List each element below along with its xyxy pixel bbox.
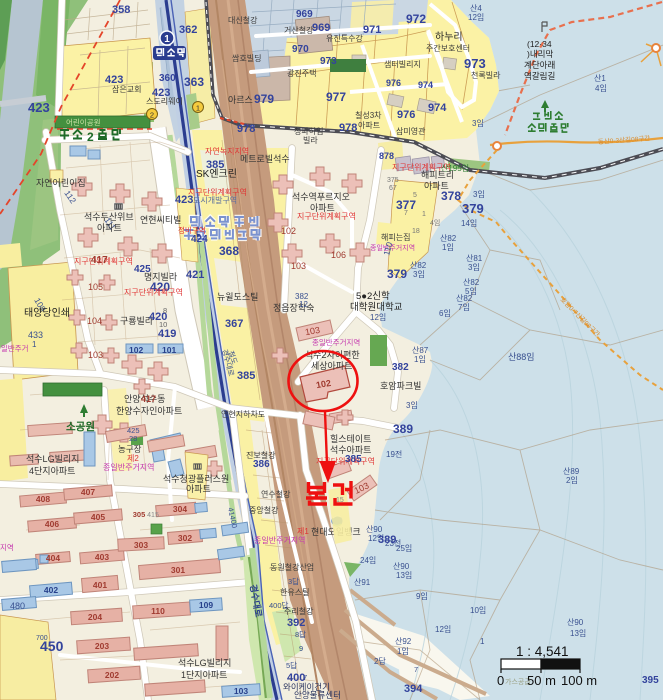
svg-text:379: 379 [462,201,484,216]
svg-text:1임: 1임 [397,647,409,656]
svg-text:103: 103 [88,350,103,360]
svg-text:천록빌라: 천록빌라 [471,70,501,80]
svg-text:아르스: 아르스 [228,95,253,105]
svg-text:102: 102 [129,345,143,355]
svg-text:뉴윌도스틸: 뉴윌도스틸 [217,292,258,302]
svg-text:석수두산위브: 석수두산위브 [84,212,134,222]
svg-text:973: 973 [464,56,486,71]
svg-text:삼미영관: 삼미영관 [396,126,426,136]
svg-text:480: 480 [10,601,25,611]
svg-text:자연어린이집: 자연어린이집 [36,177,86,188]
svg-text:109: 109 [199,600,213,610]
svg-text:3임: 3임 [472,119,484,128]
svg-text:산90: 산90 [567,617,584,627]
svg-text:아파트: 아파트 [186,484,211,494]
svg-text:어린이공원: 어린이공원 [66,117,101,127]
svg-text:8답: 8답 [295,629,306,639]
svg-text:9: 9 [299,644,303,653]
svg-text:110: 110 [151,606,165,616]
svg-text:산82: 산82 [456,293,473,303]
svg-text:415: 415 [147,512,159,519]
svg-text:14임: 14임 [461,219,477,228]
svg-text:지구단위계획구역: 지구단위계획구역 [124,287,183,297]
svg-text:102: 102 [281,226,296,236]
svg-text:106: 106 [331,250,346,260]
svg-text:소공원: 소공원 [66,420,95,433]
svg-text:산4: 산4 [470,3,482,13]
svg-text:1임: 1임 [414,355,426,364]
svg-text:1: 1 [32,340,37,349]
svg-text:2답: 2답 [374,656,386,666]
svg-text:202: 202 [105,670,119,680]
svg-text:302: 302 [178,533,192,543]
svg-text:50 m: 50 m [527,673,556,688]
svg-text:385: 385 [345,454,362,465]
svg-text:433: 433 [28,330,43,340]
svg-text:392: 392 [287,617,305,629]
svg-text:삼은교회: 삼은교회 [112,84,141,94]
svg-text:(12·34: (12·34 [527,39,552,49]
svg-text:970: 970 [292,44,309,55]
svg-text:2임: 2임 [566,476,578,485]
svg-text:969: 969 [312,22,330,34]
svg-text:969: 969 [296,9,313,20]
svg-text:산90: 산90 [393,561,410,571]
svg-text:연현지하차도: 연현지하차도 [221,409,265,419]
svg-text:5●2신학: 5●2신학 [356,291,390,302]
svg-text:976: 976 [386,78,401,88]
svg-text:1: 1 [480,637,485,646]
svg-text:67: 67 [389,185,397,192]
svg-text:105: 105 [88,282,103,292]
svg-text:4단지아파트: 4단지아파트 [29,466,75,476]
svg-text:산89: 산89 [563,466,580,476]
svg-text:979: 979 [254,92,274,106]
svg-text:석수2차이편한: 석수2차이편한 [305,349,360,360]
svg-text:2: 2 [87,130,94,144]
svg-text:한양수자인아파트: 한양수자인아파트 [116,406,182,416]
svg-text:SK엔크린: SK엔크린 [196,168,237,180]
svg-text:303: 303 [134,540,148,550]
svg-text:368: 368 [219,244,239,258]
svg-text:1단지아파트: 1단지아파트 [181,670,227,680]
svg-text:404: 404 [46,553,60,563]
svg-text:주리철강: 주리철강 [284,606,314,616]
svg-text:203: 203 [95,641,109,651]
svg-text:1임: 1임 [442,243,454,252]
svg-text:423: 423 [152,87,170,99]
svg-text:419: 419 [158,328,176,340]
svg-text:378: 378 [441,189,461,203]
svg-text:5답: 5답 [286,660,297,670]
svg-text:421: 421 [186,269,204,281]
svg-text:태양당인쇄: 태양당인쇄 [24,307,70,319]
svg-text:3임: 3임 [468,263,480,272]
svg-text:100 m: 100 m [561,673,597,688]
svg-text:역갈림길: 역갈림길 [524,71,555,81]
svg-text:978: 978 [339,122,357,134]
svg-text:산88임: 산88임 [508,351,535,362]
svg-text:12임: 12임 [370,313,386,322]
svg-text:아파트: 아파트 [358,120,380,130]
svg-text:종일반주거: 종일반주거 [0,344,29,353]
svg-text:9임: 9임 [416,592,428,601]
svg-text:1: 1 [164,34,170,45]
svg-text:도시개발구역: 도시개발구역 [193,195,237,205]
svg-text:지구단위계획구역: 지구단위계획구역 [297,211,356,221]
svg-text:연수철강: 연수철강 [261,489,291,499]
svg-text:3임: 3임 [406,401,418,410]
svg-text:405: 405 [91,512,105,522]
svg-text:힐스테이트: 힐스테이트 [330,433,371,444]
svg-text:375: 375 [387,177,399,184]
svg-text:28: 28 [129,434,137,443]
svg-text:산87: 산87 [412,345,429,355]
svg-text:)내리막: )내리막 [527,49,553,59]
svg-text:10임: 10임 [470,606,486,615]
svg-text:13임: 13임 [570,629,586,638]
svg-text:103: 103 [291,261,306,271]
svg-text:305: 305 [133,510,146,519]
svg-text:408: 408 [36,494,50,504]
svg-text:산81: 산81 [466,253,483,263]
svg-text:12임: 12임 [468,13,484,22]
svg-text:7임: 7임 [458,303,470,312]
svg-text:빌라: 빌라 [303,135,318,145]
svg-text:아파트: 아파트 [97,223,122,233]
svg-text:석수LG빌리지: 석수LG빌리지 [26,454,79,464]
svg-text:메트로빌석수: 메트로빌석수 [240,154,290,164]
svg-text:1: 1 [422,211,426,218]
svg-text:12임: 12임 [435,625,451,634]
svg-text:974: 974 [428,102,447,114]
svg-text:417: 417 [91,255,108,266]
svg-text:7: 7 [414,665,418,674]
svg-text:4임: 4임 [595,84,607,93]
svg-text:973: 973 [320,56,337,67]
svg-text:104: 104 [87,316,102,326]
svg-text:402: 402 [44,585,58,595]
svg-text:363: 363 [184,75,204,89]
svg-text:산82: 산82 [440,233,457,243]
svg-text:972: 972 [406,12,426,26]
svg-text:해피트리: 해피트리 [421,170,454,180]
svg-text:하누리: 하누리 [435,30,463,43]
svg-text:산82: 산82 [463,277,480,287]
svg-text:424: 424 [191,234,208,245]
svg-text:2: 2 [150,111,154,120]
svg-text:304: 304 [173,504,187,514]
svg-text:13임: 13임 [396,571,412,580]
svg-text:세상아파트: 세상아파트 [311,361,352,371]
svg-text:878: 878 [379,151,394,161]
svg-text:중앙철강: 중앙철강 [249,505,279,515]
svg-text:403: 403 [95,552,109,562]
svg-text:호암파크빌: 호암파크빌 [380,380,421,391]
svg-text:동원철강산업: 동원철강산업 [270,562,314,572]
svg-text:358: 358 [112,4,130,16]
svg-text:석수청광플러스원: 석수청광플러스원 [163,473,229,484]
svg-text:5: 5 [413,192,417,199]
svg-text:해피는집: 해피는집 [381,232,410,242]
svg-text:700: 700 [36,635,48,642]
svg-text:3답: 3답 [288,576,299,586]
svg-text:8: 8 [163,306,167,315]
svg-text:103: 103 [234,686,248,696]
svg-text:종일반주거지역: 종일반주거지역 [312,337,360,347]
svg-text:423: 423 [175,194,193,206]
svg-text:3임: 3임 [413,270,425,279]
svg-text:974: 974 [418,80,433,90]
svg-text:제2: 제2 [127,454,139,463]
svg-text:0: 0 [497,673,504,688]
svg-text:18: 18 [412,228,420,235]
svg-text:산82: 산82 [410,260,427,270]
svg-text:한유스틸: 한유스틸 [280,587,309,597]
svg-text:204: 204 [88,612,102,622]
svg-text:대학원대학교: 대학원대학교 [350,302,403,313]
svg-text:연현씨티빌: 연현씨티빌 [140,215,181,225]
svg-text:종일반주거지역: 종일반주거지역 [254,535,306,545]
svg-text:대신철강: 대신철강 [228,15,258,25]
svg-text:석수LG빌리지: 석수LG빌리지 [178,658,231,668]
svg-text:977: 977 [326,90,346,104]
svg-text:389: 389 [393,422,413,436]
svg-text:산1: 산1 [594,73,606,83]
svg-text:406: 406 [45,519,59,529]
svg-text:12: 12 [299,300,308,309]
svg-text:주간보호센터: 주간보호센터 [426,43,470,53]
svg-text:3임: 3임 [473,190,485,199]
svg-text:19전: 19전 [386,449,402,459]
svg-text:24임: 24임 [360,556,376,565]
svg-text:101: 101 [162,345,176,355]
svg-text:광진주택: 광진주택 [287,68,316,78]
svg-text:362: 362 [179,24,197,36]
svg-text:계단아래: 계단아래 [524,60,555,70]
svg-text:칠성3차: 칠성3차 [355,111,382,120]
svg-text:거산철강: 거산철강 [284,25,314,35]
svg-text:360: 360 [159,73,176,84]
svg-text:산92: 산92 [395,636,412,646]
svg-text:395: 395 [642,675,659,686]
svg-text:유진특수강: 유진특수강 [326,33,363,43]
svg-text:석수역푸르지오: 석수역푸르지오 [292,192,350,202]
svg-text:1 : 4,541: 1 : 4,541 [516,644,569,659]
svg-text:제1: 제1 [297,527,309,536]
svg-text:산90: 산90 [366,524,383,534]
svg-text:385: 385 [237,370,255,382]
svg-text:지역: 지역 [0,542,14,552]
svg-text:382: 382 [392,362,409,373]
svg-text:394: 394 [404,683,423,695]
svg-text:청파하임: 청파하임 [294,126,323,136]
svg-text:367: 367 [225,318,243,330]
svg-text:농구장: 농구장 [118,444,142,454]
svg-text:423: 423 [28,100,50,115]
svg-text:25임: 25임 [396,544,412,553]
svg-text:7: 7 [404,210,408,217]
svg-text:안양물류센터: 안양물류센터 [294,690,341,700]
svg-text:976: 976 [397,109,415,121]
svg-text:978: 978 [237,123,255,135]
svg-text:379: 379 [387,267,407,281]
svg-text:971: 971 [363,24,381,36]
svg-text:6임: 6임 [439,309,451,318]
svg-text:샘터빌리지: 샘터빌리지 [384,59,421,69]
svg-text:산91: 산91 [354,577,371,587]
svg-text:정읍장학숙: 정읍장학숙 [273,303,314,313]
svg-text:401: 401 [93,580,107,590]
svg-text:417: 417 [141,394,156,404]
svg-text:301: 301 [171,565,185,575]
svg-text:389: 389 [378,534,396,546]
svg-text:1: 1 [196,104,200,113]
svg-text:4임: 4임 [430,219,440,227]
svg-text:쌈호빌딩: 쌈호빌딩 [232,53,261,63]
svg-text:종일반주거지역: 종일반주거지역 [103,462,155,472]
svg-text:386: 386 [253,459,270,470]
svg-text:407: 407 [81,487,95,497]
